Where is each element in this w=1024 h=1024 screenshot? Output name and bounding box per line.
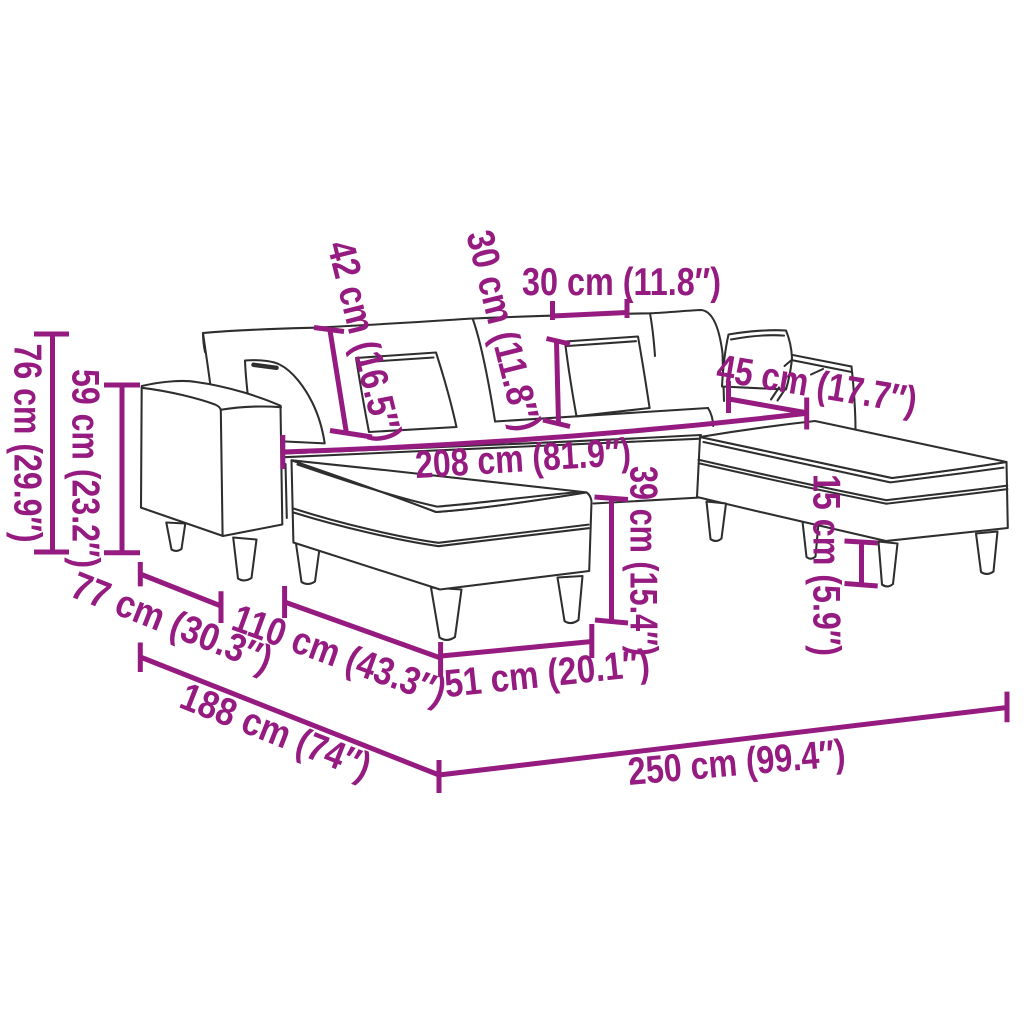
svg-text:15 cm (5.9″): 15 cm (5.9″): [805, 474, 848, 656]
svg-text:59 cm (23.2″): 59 cm (23.2″): [64, 369, 107, 568]
svg-text:30 cm (11.8″): 30 cm (11.8″): [522, 261, 721, 304]
svg-text:76 cm (29.9″): 76 cm (29.9″): [6, 344, 49, 543]
svg-text:39 cm (15.4″): 39 cm (15.4″): [622, 466, 665, 656]
